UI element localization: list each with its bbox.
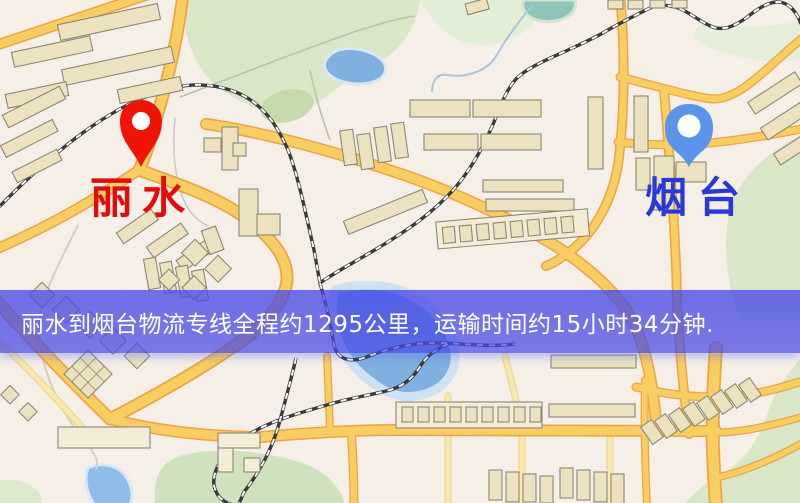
street-map-image [0,0,800,503]
destination-label: 烟台 [645,177,751,219]
route-info-text: 丽水到烟台物流专线全程约1295公里，运输时间约15小时34分钟. [0,305,714,339]
origin-label: 丽水 [90,178,194,221]
logistics-route-map: 丽水 烟台 丽水到烟台物流专线全程约1295公里，运输时间约15小时34分钟. [0,0,800,503]
route-info-banner: 丽水到烟台物流专线全程约1295公里，运输时间约15小时34分钟. [0,290,800,353]
